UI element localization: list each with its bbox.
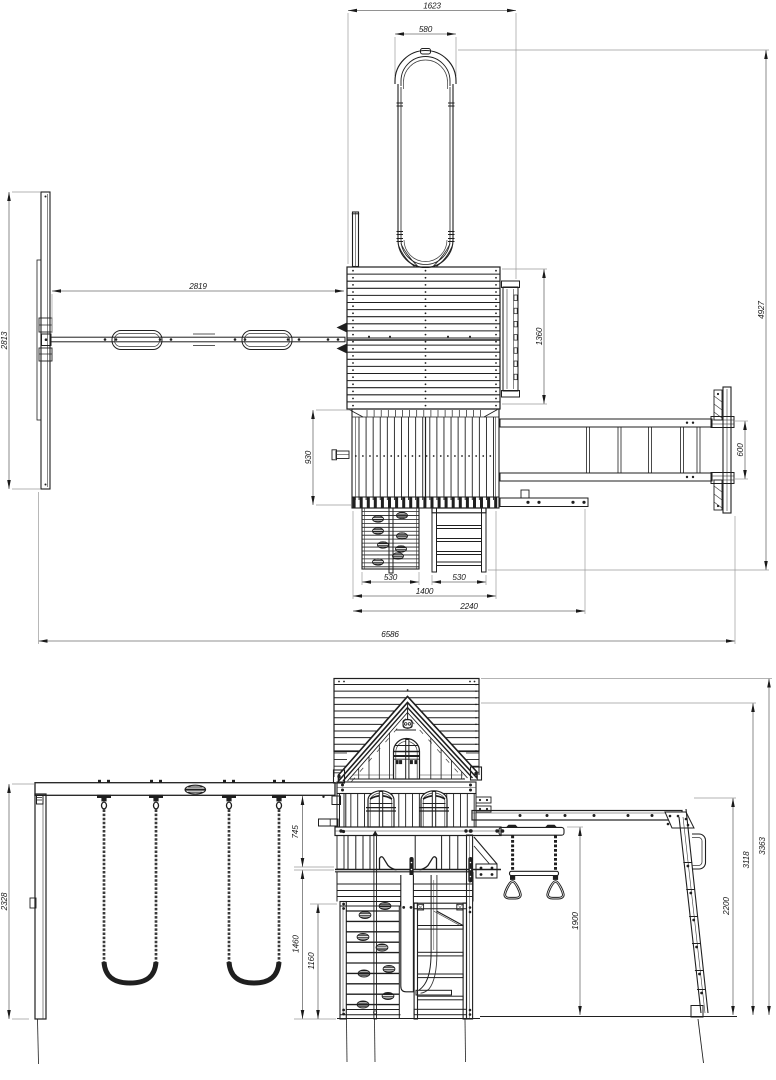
- svg-text:2813: 2813: [0, 331, 9, 350]
- svg-text:1360: 1360: [535, 327, 544, 345]
- svg-text:600: 600: [736, 443, 745, 457]
- svg-text:2819: 2819: [188, 282, 207, 291]
- svg-text:1400: 1400: [416, 587, 434, 596]
- svg-text:2200: 2200: [722, 897, 731, 916]
- svg-text:580: 580: [419, 25, 433, 34]
- svg-text:745: 745: [291, 825, 300, 839]
- svg-text:930: 930: [304, 450, 313, 464]
- svg-text:4927: 4927: [757, 301, 766, 319]
- svg-text:2328: 2328: [0, 892, 9, 911]
- svg-text:1160: 1160: [307, 952, 316, 970]
- svg-text:1900: 1900: [571, 912, 580, 930]
- svg-text:530: 530: [452, 573, 466, 582]
- svg-text:530: 530: [384, 573, 398, 582]
- svg-text:1623: 1623: [423, 2, 441, 11]
- svg-text:2240: 2240: [459, 602, 478, 611]
- svg-text:1460: 1460: [292, 935, 301, 953]
- svg-text:3118: 3118: [742, 851, 751, 869]
- svg-text:6586: 6586: [381, 630, 399, 639]
- svg-text:3363: 3363: [758, 837, 767, 855]
